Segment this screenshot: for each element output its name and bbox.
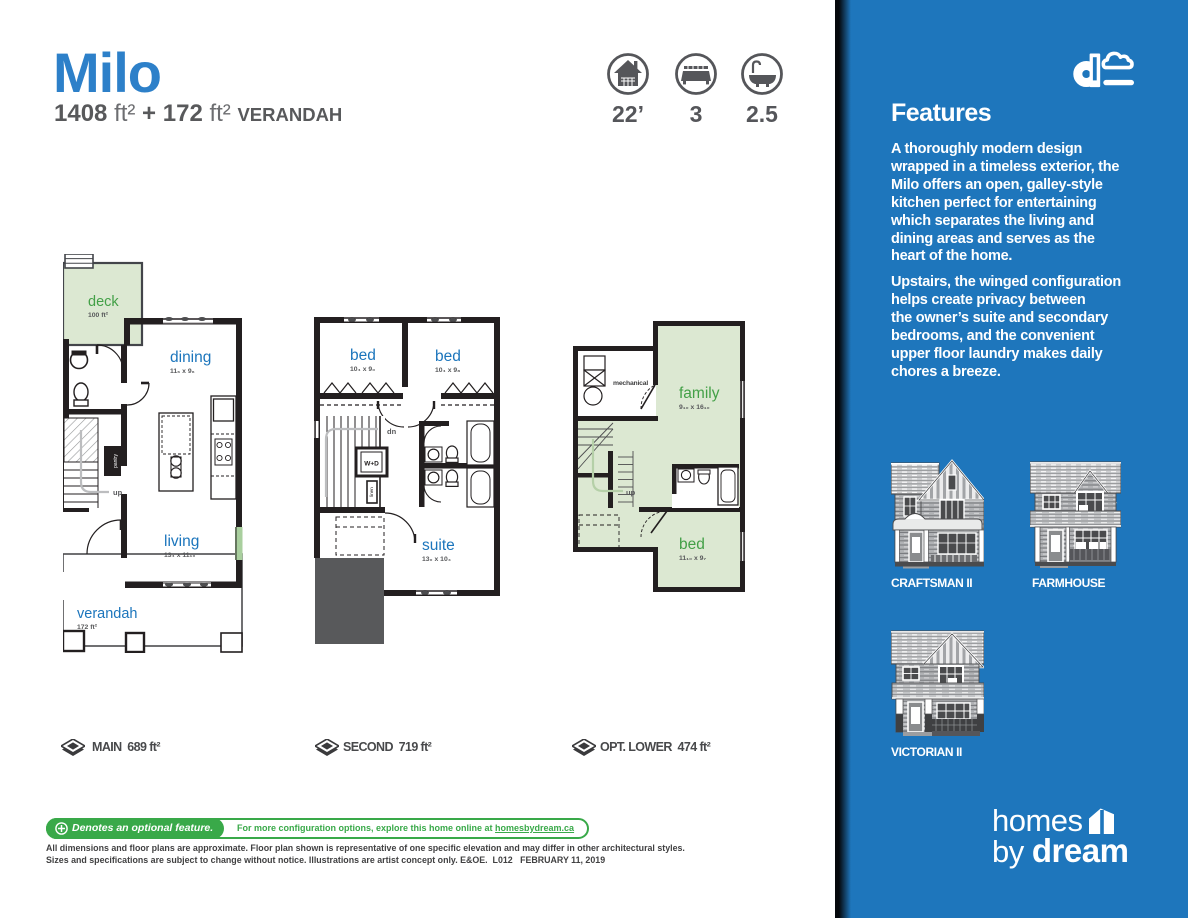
svg-text:172 ft²: 172 ft² [77, 624, 98, 631]
svg-text:verandah: verandah [77, 606, 137, 622]
svg-text:11₁₀ x 9₇: 11₁₀ x 9₇ [679, 555, 706, 562]
svg-text:up: up [113, 488, 123, 497]
svg-text:linen: linen [369, 487, 374, 497]
svg-text:deck: deck [88, 294, 119, 310]
svg-text:13₄ x 11₁₀: 13₄ x 11₁₀ [164, 552, 195, 559]
svg-text:10₄ x 9₈: 10₄ x 9₈ [435, 367, 460, 374]
svg-text:bed: bed [679, 536, 705, 553]
svg-text:suite: suite [422, 537, 455, 554]
svg-text:mechanical: mechanical [613, 380, 648, 387]
svg-text:W+D: W+D [364, 461, 379, 468]
svg-text:13₀ x 10₄: 13₀ x 10₄ [422, 556, 451, 563]
svg-text:family: family [679, 385, 720, 402]
svg-text:dn: dn [387, 427, 397, 436]
svg-text:bed: bed [435, 348, 461, 365]
svg-text:bed: bed [350, 347, 376, 364]
svg-text:100 ft²: 100 ft² [88, 312, 109, 319]
svg-text:10₄ x 9₀: 10₄ x 9₀ [350, 366, 375, 373]
svg-text:dining: dining [170, 349, 211, 366]
svg-text:pantry: pantry [113, 454, 119, 468]
svg-text:11₆ x 9₆: 11₆ x 9₆ [170, 368, 195, 375]
svg-text:9₁₀ x 16₁₀: 9₁₀ x 16₁₀ [679, 404, 710, 411]
svg-text:living: living [164, 533, 199, 550]
svg-text:up: up [626, 488, 636, 497]
